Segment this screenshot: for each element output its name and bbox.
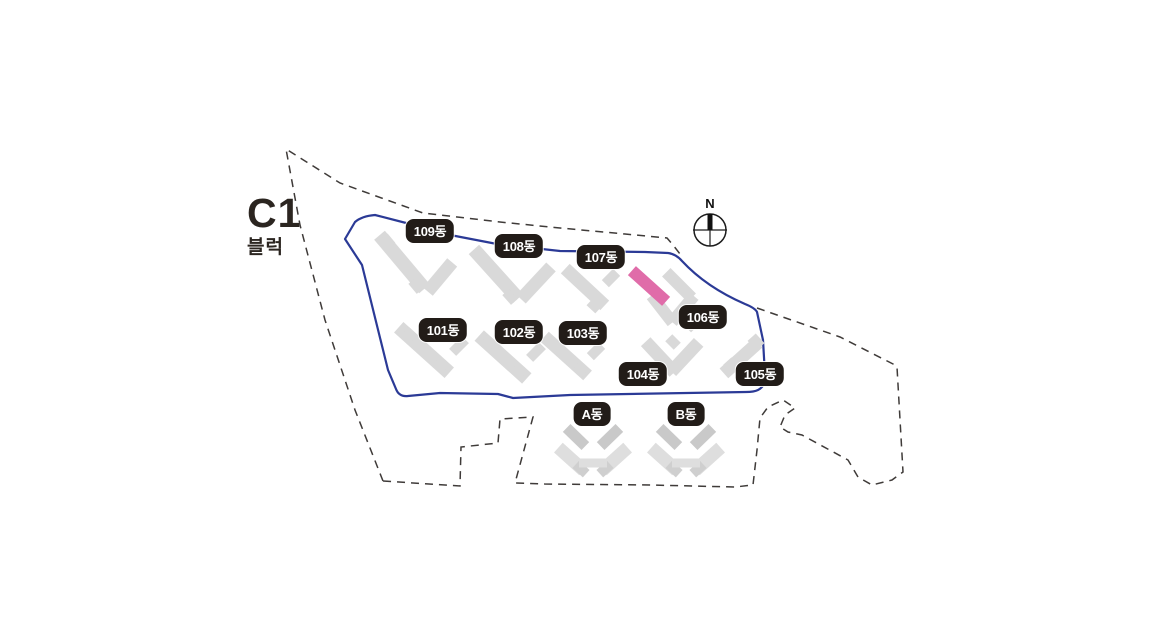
building-wing <box>526 342 546 362</box>
building-wing <box>656 424 682 450</box>
building-label-108[interactable]: 108동 <box>495 234 543 258</box>
building-label-103[interactable]: 103동 <box>559 321 607 345</box>
building-label-b[interactable]: B동 <box>668 402 705 426</box>
compass-icon <box>693 214 727 246</box>
compass-north-label: N <box>705 196 714 211</box>
building-wing <box>423 258 457 295</box>
site-plan-canvas: C1 블럭 N 109동 108동 107동 106동 101동 102동 10… <box>0 0 1160 640</box>
building-label-102[interactable]: 102동 <box>495 320 543 344</box>
site-plan-map <box>0 0 1160 640</box>
building-wing <box>579 459 607 468</box>
building-b-footprint <box>647 424 725 477</box>
building-label-104[interactable]: 104동 <box>619 362 667 386</box>
building-label-101[interactable]: 101동 <box>419 318 467 342</box>
building-wing <box>597 424 623 450</box>
building-wing <box>516 262 556 303</box>
building-label-107[interactable]: 107동 <box>577 245 625 269</box>
building-wing <box>602 269 620 287</box>
building-label-105[interactable]: 105동 <box>736 362 784 386</box>
compass-needle-north <box>708 214 713 230</box>
building-wing <box>563 424 589 450</box>
block-title: C1 블럭 <box>247 193 357 257</box>
building-label-109[interactable]: 109동 <box>406 219 454 243</box>
building-label-a[interactable]: A동 <box>574 402 611 426</box>
block-suffix-label: 블럭 <box>247 238 357 257</box>
building-wing <box>665 334 681 350</box>
block-code-label: C1 <box>247 193 357 234</box>
building-wing <box>672 459 700 468</box>
building-a-footprint <box>554 424 632 477</box>
building-107-footprint <box>561 264 620 314</box>
building-wing <box>690 424 716 450</box>
building-label-106[interactable]: 106동 <box>679 305 727 329</box>
